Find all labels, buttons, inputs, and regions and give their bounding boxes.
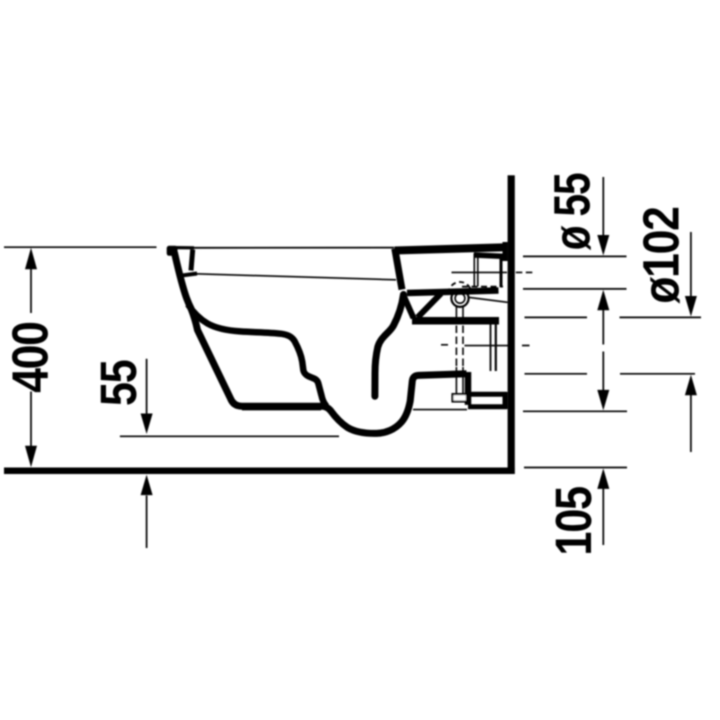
svg-text:55: 55 <box>89 361 146 406</box>
svg-text:ø102: ø102 <box>634 207 690 303</box>
svg-text:ø 55: ø 55 <box>543 173 600 250</box>
svg-text:105: 105 <box>546 487 603 556</box>
svg-text:400: 400 <box>3 322 59 392</box>
